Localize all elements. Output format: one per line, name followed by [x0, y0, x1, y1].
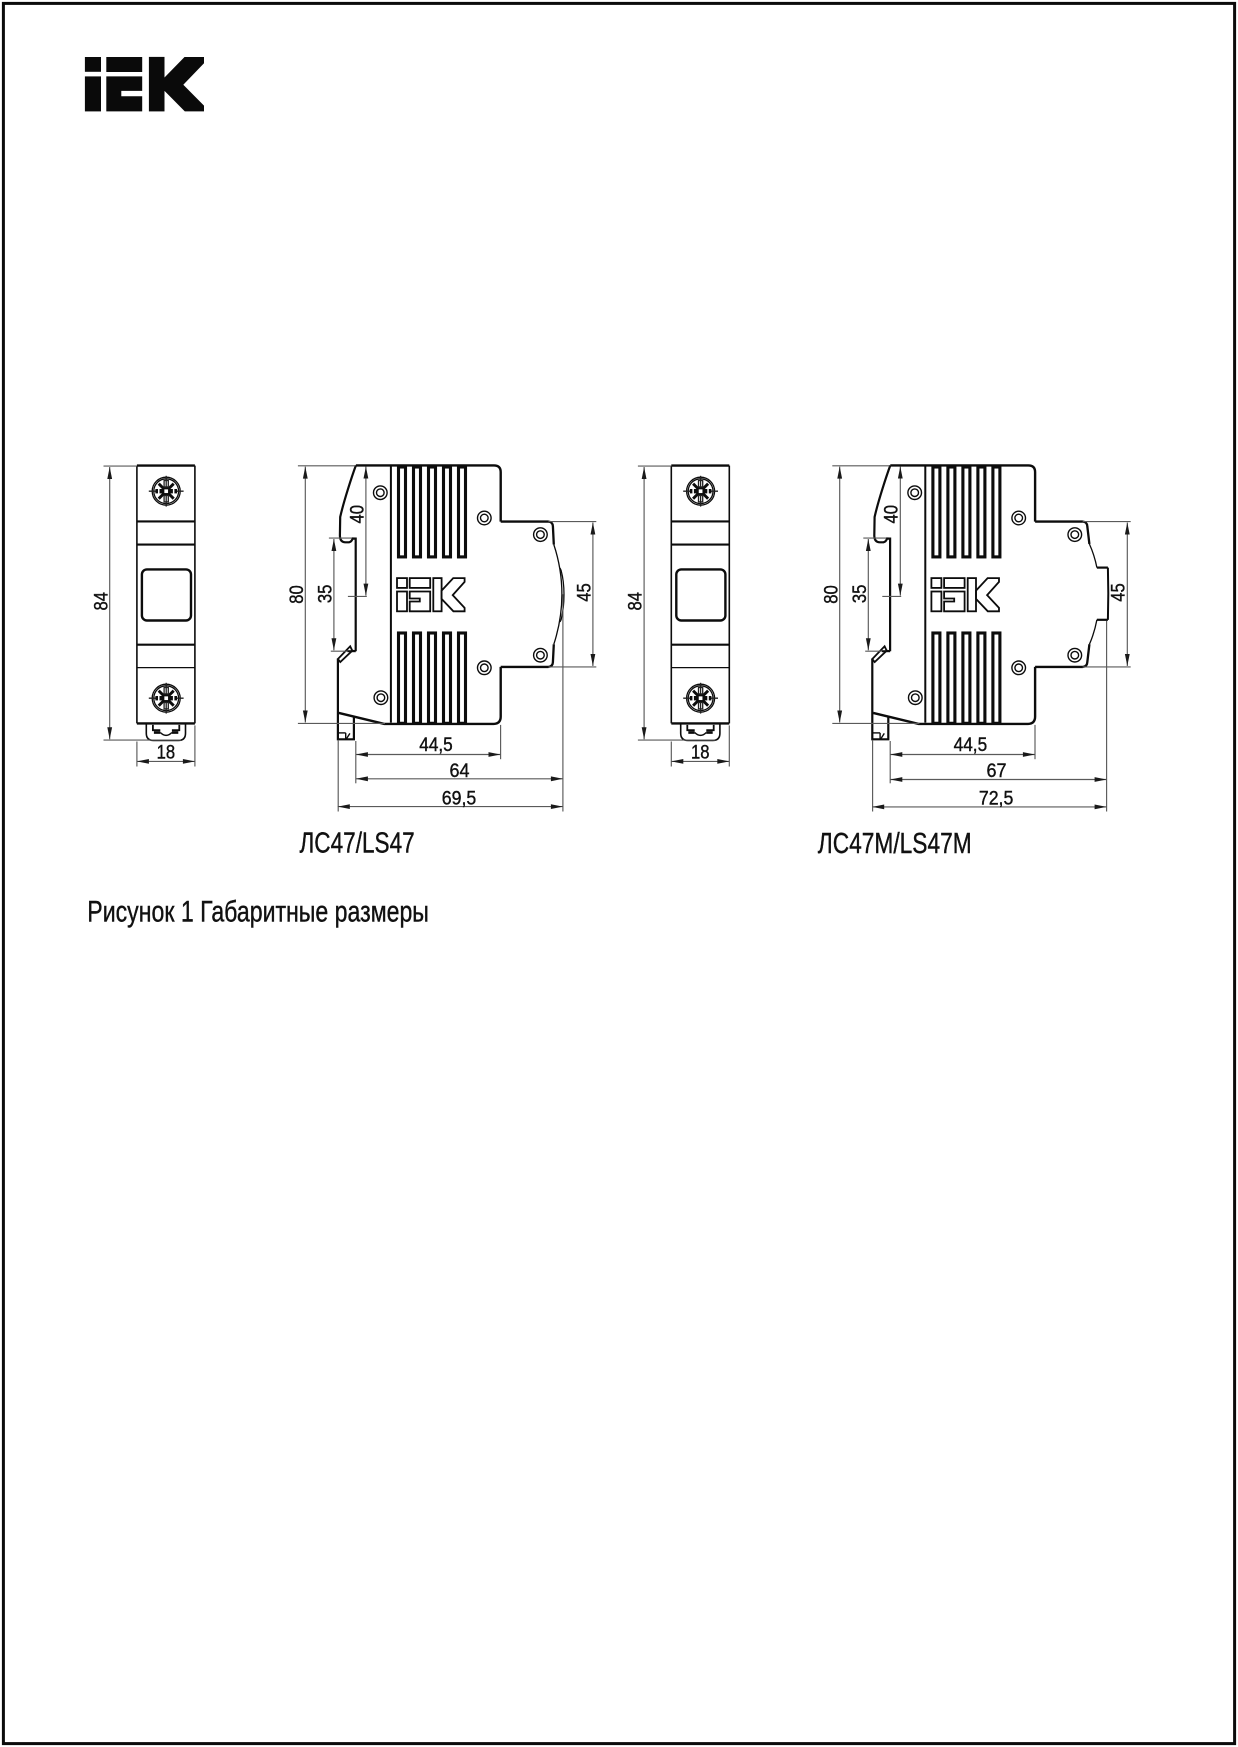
svg-text:72,5: 72,5 — [979, 787, 1014, 809]
svg-text:67: 67 — [987, 760, 1007, 782]
svg-text:ЛС47/LS47: ЛС47/LS47 — [300, 828, 415, 860]
svg-text:35: 35 — [314, 585, 336, 604]
svg-text:Рисунок 1 Габаритные размеры: Рисунок 1 Габаритные размеры — [87, 896, 429, 929]
svg-text:18: 18 — [157, 742, 176, 764]
svg-text:64: 64 — [450, 760, 470, 782]
svg-text:40: 40 — [346, 505, 368, 524]
svg-text:69,5: 69,5 — [442, 787, 477, 809]
svg-text:84: 84 — [625, 592, 647, 611]
svg-text:45: 45 — [573, 583, 595, 602]
svg-text:45: 45 — [1108, 583, 1130, 602]
svg-text:44,5: 44,5 — [419, 734, 453, 756]
svg-text:40: 40 — [881, 505, 903, 524]
svg-text:18: 18 — [691, 742, 710, 764]
svg-text:84: 84 — [90, 592, 112, 611]
svg-text:80: 80 — [286, 585, 308, 604]
svg-text:80: 80 — [820, 585, 842, 604]
svg-text:35: 35 — [849, 585, 871, 604]
svg-text:44,5: 44,5 — [954, 734, 988, 756]
svg-text:ЛС47М/LS47М: ЛС47М/LS47М — [818, 828, 972, 860]
